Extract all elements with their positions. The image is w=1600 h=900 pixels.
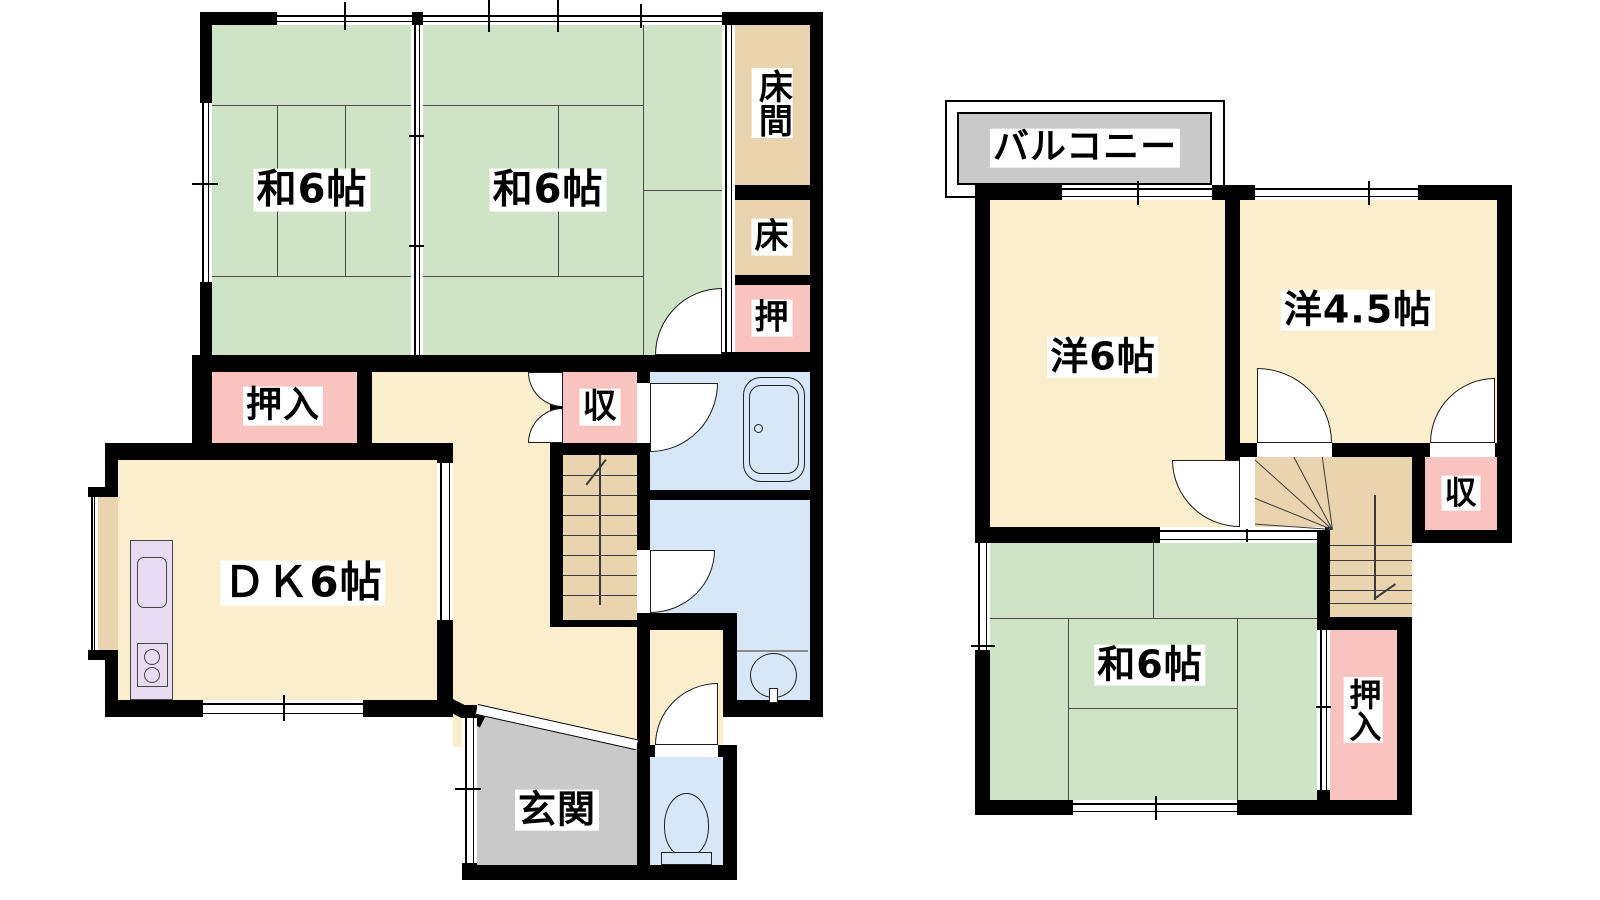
- wall: [637, 613, 650, 880]
- wall: [637, 355, 823, 372]
- room-label-toko: 床: [752, 219, 793, 256]
- tatami-seam: [643, 190, 722, 191]
- wall: [722, 12, 823, 25]
- room-label-tokonoma: 床間: [752, 68, 793, 138]
- wall: [1495, 443, 1512, 457]
- wall: [462, 865, 737, 880]
- wall: [637, 490, 810, 500]
- wall: [200, 355, 650, 372]
- window-tick: [409, 135, 424, 137]
- wall: [637, 372, 650, 383]
- window: [975, 543, 990, 650]
- wall: [1412, 443, 1425, 543]
- wall: [1497, 185, 1512, 543]
- fusuma-sliding-partition: [411, 25, 423, 355]
- tatami-seam: [1153, 543, 1154, 618]
- room-label-storage-2f: 収: [1441, 476, 1480, 511]
- tatami-seam: [990, 618, 1317, 619]
- room-label-storage-1f: 収: [580, 389, 621, 426]
- bay-window-sill: [98, 497, 118, 650]
- stair-up-line: [1374, 495, 1376, 600]
- window-tick: [1137, 181, 1139, 205]
- room-label-dk: ＤＫ6帖: [220, 561, 385, 606]
- bath-drain: [754, 424, 763, 433]
- window-tick: [192, 183, 218, 185]
- wall: [990, 527, 1160, 543]
- doorway: [655, 745, 718, 757]
- wall: [88, 650, 118, 660]
- window-tick: [640, 4, 642, 28]
- stair-tread: [1330, 590, 1412, 591]
- wall: [1240, 443, 1257, 457]
- window-tick: [1316, 706, 1331, 708]
- toilet-tank: [661, 852, 712, 865]
- wall: [718, 745, 737, 757]
- hallway-1f: [372, 372, 550, 443]
- wall: [550, 620, 637, 627]
- doorway: [1430, 443, 1495, 457]
- wall: [105, 660, 118, 700]
- wall: [437, 620, 453, 700]
- wall: [975, 800, 1073, 815]
- fusuma-sliding-door: [1317, 630, 1330, 790]
- toilet-bowl: [664, 793, 709, 857]
- wall: [637, 452, 650, 550]
- wall: [1317, 790, 1330, 802]
- wall: [550, 443, 650, 455]
- entry-sliding-door: [462, 718, 477, 863]
- wall: [1225, 185, 1240, 460]
- wall: [105, 443, 453, 460]
- stair-up-line: [599, 455, 601, 605]
- wall: [200, 25, 212, 103]
- wall: [462, 705, 477, 718]
- washstand-counter: [737, 650, 808, 652]
- room-label-western45: 洋4.5帖: [1281, 290, 1435, 331]
- wall: [105, 700, 203, 717]
- room-label-balcony: バルコニー: [990, 129, 1180, 168]
- window: [423, 12, 722, 25]
- hallway-1f: [453, 443, 550, 627]
- room-label-washitsu-2f: 和6帖: [1094, 645, 1205, 686]
- window-tick: [409, 245, 424, 247]
- wall: [1412, 530, 1512, 543]
- wall: [1237, 800, 1412, 815]
- wall: [357, 355, 372, 443]
- wall: [462, 863, 477, 880]
- window-tick: [1368, 181, 1370, 205]
- window-tick: [971, 645, 995, 647]
- room-label-oshiire-1f: 押入: [243, 387, 323, 426]
- wall: [735, 185, 810, 200]
- wall: [200, 12, 277, 25]
- wall: [975, 185, 990, 543]
- wall: [1397, 617, 1412, 815]
- tatami-seam: [212, 105, 411, 106]
- wall: [735, 275, 810, 285]
- sliding-door: [437, 463, 453, 620]
- window-tick: [1246, 529, 1248, 542]
- window: [1255, 185, 1418, 200]
- tatami-seam: [1068, 708, 1238, 709]
- window-tick: [488, 0, 490, 32]
- wall: [105, 443, 118, 487]
- room-label-western6: 洋6帖: [1047, 337, 1158, 378]
- room-label-washitsu1-1f: 和6帖: [254, 169, 371, 212]
- washbasin-pedestal: [769, 688, 778, 703]
- wall: [1317, 543, 1330, 630]
- tatami-seam: [212, 276, 411, 277]
- stair-winder-fan: [1255, 457, 1412, 530]
- kitchen-sink: [137, 557, 167, 608]
- wall: [88, 487, 118, 497]
- window-tick: [283, 695, 285, 721]
- stove-burner: [144, 649, 160, 665]
- stair-tread: [1330, 603, 1412, 604]
- room-label-oshiire-2f: 押入: [1344, 677, 1383, 743]
- room-label-genkan: 玄関: [515, 790, 599, 831]
- tatami-seam: [423, 105, 643, 106]
- wall: [412, 12, 423, 25]
- window-tick: [344, 2, 346, 30]
- window-tick: [557, 0, 559, 32]
- room-label-oshi: 押: [752, 300, 793, 337]
- bay-window: [88, 497, 98, 650]
- stair-tread: [1330, 560, 1412, 561]
- wall: [437, 443, 453, 463]
- wall: [723, 757, 737, 880]
- stair-tread: [1330, 575, 1412, 576]
- doorway: [1257, 443, 1332, 457]
- wall: [975, 650, 990, 815]
- sliding-door-track: [722, 25, 735, 352]
- stair-tread: [1330, 545, 1412, 546]
- room-label-washitsu2-1f: 和6帖: [490, 169, 607, 212]
- tatami-seam: [423, 276, 643, 277]
- floor-plan-canvas: 和6帖 和6帖 床間 床 押 押入 収 ＤＫ6帖 玄関 バルコニー 洋6帖 洋4…: [0, 0, 1600, 900]
- window: [199, 103, 212, 282]
- stove-burner: [144, 667, 160, 683]
- window-tick: [455, 788, 481, 790]
- window-tick: [1155, 796, 1157, 820]
